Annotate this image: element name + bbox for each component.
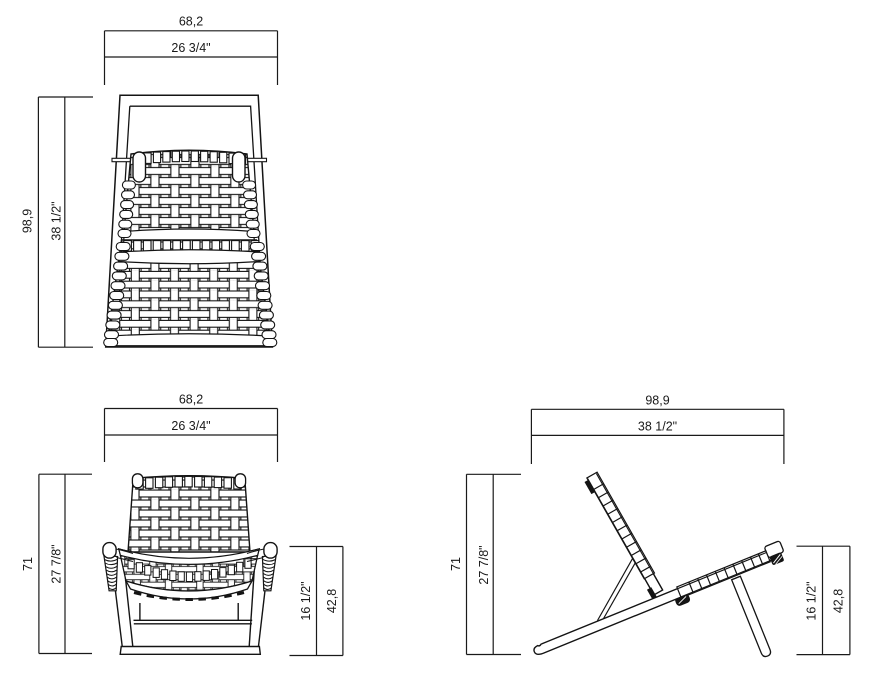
svg-text:26 3/4": 26 3/4" bbox=[171, 419, 210, 433]
svg-text:42,8: 42,8 bbox=[832, 589, 846, 613]
svg-text:16 1/2": 16 1/2" bbox=[299, 581, 313, 620]
svg-text:27 7/8": 27 7/8" bbox=[50, 544, 64, 583]
svg-text:42,8: 42,8 bbox=[325, 589, 339, 613]
svg-text:27 7/8": 27 7/8" bbox=[477, 545, 491, 584]
svg-text:71: 71 bbox=[21, 557, 35, 571]
svg-text:26 3/4": 26 3/4" bbox=[171, 41, 210, 55]
svg-text:71: 71 bbox=[449, 557, 463, 571]
svg-text:38 1/2": 38 1/2" bbox=[638, 420, 677, 434]
svg-text:68,2: 68,2 bbox=[179, 393, 203, 407]
svg-text:16 1/2": 16 1/2" bbox=[805, 581, 819, 620]
svg-text:98,9: 98,9 bbox=[645, 393, 669, 407]
svg-text:68,2: 68,2 bbox=[179, 15, 203, 29]
svg-text:38 1/2": 38 1/2" bbox=[50, 201, 64, 240]
svg-text:98,9: 98,9 bbox=[21, 209, 35, 233]
